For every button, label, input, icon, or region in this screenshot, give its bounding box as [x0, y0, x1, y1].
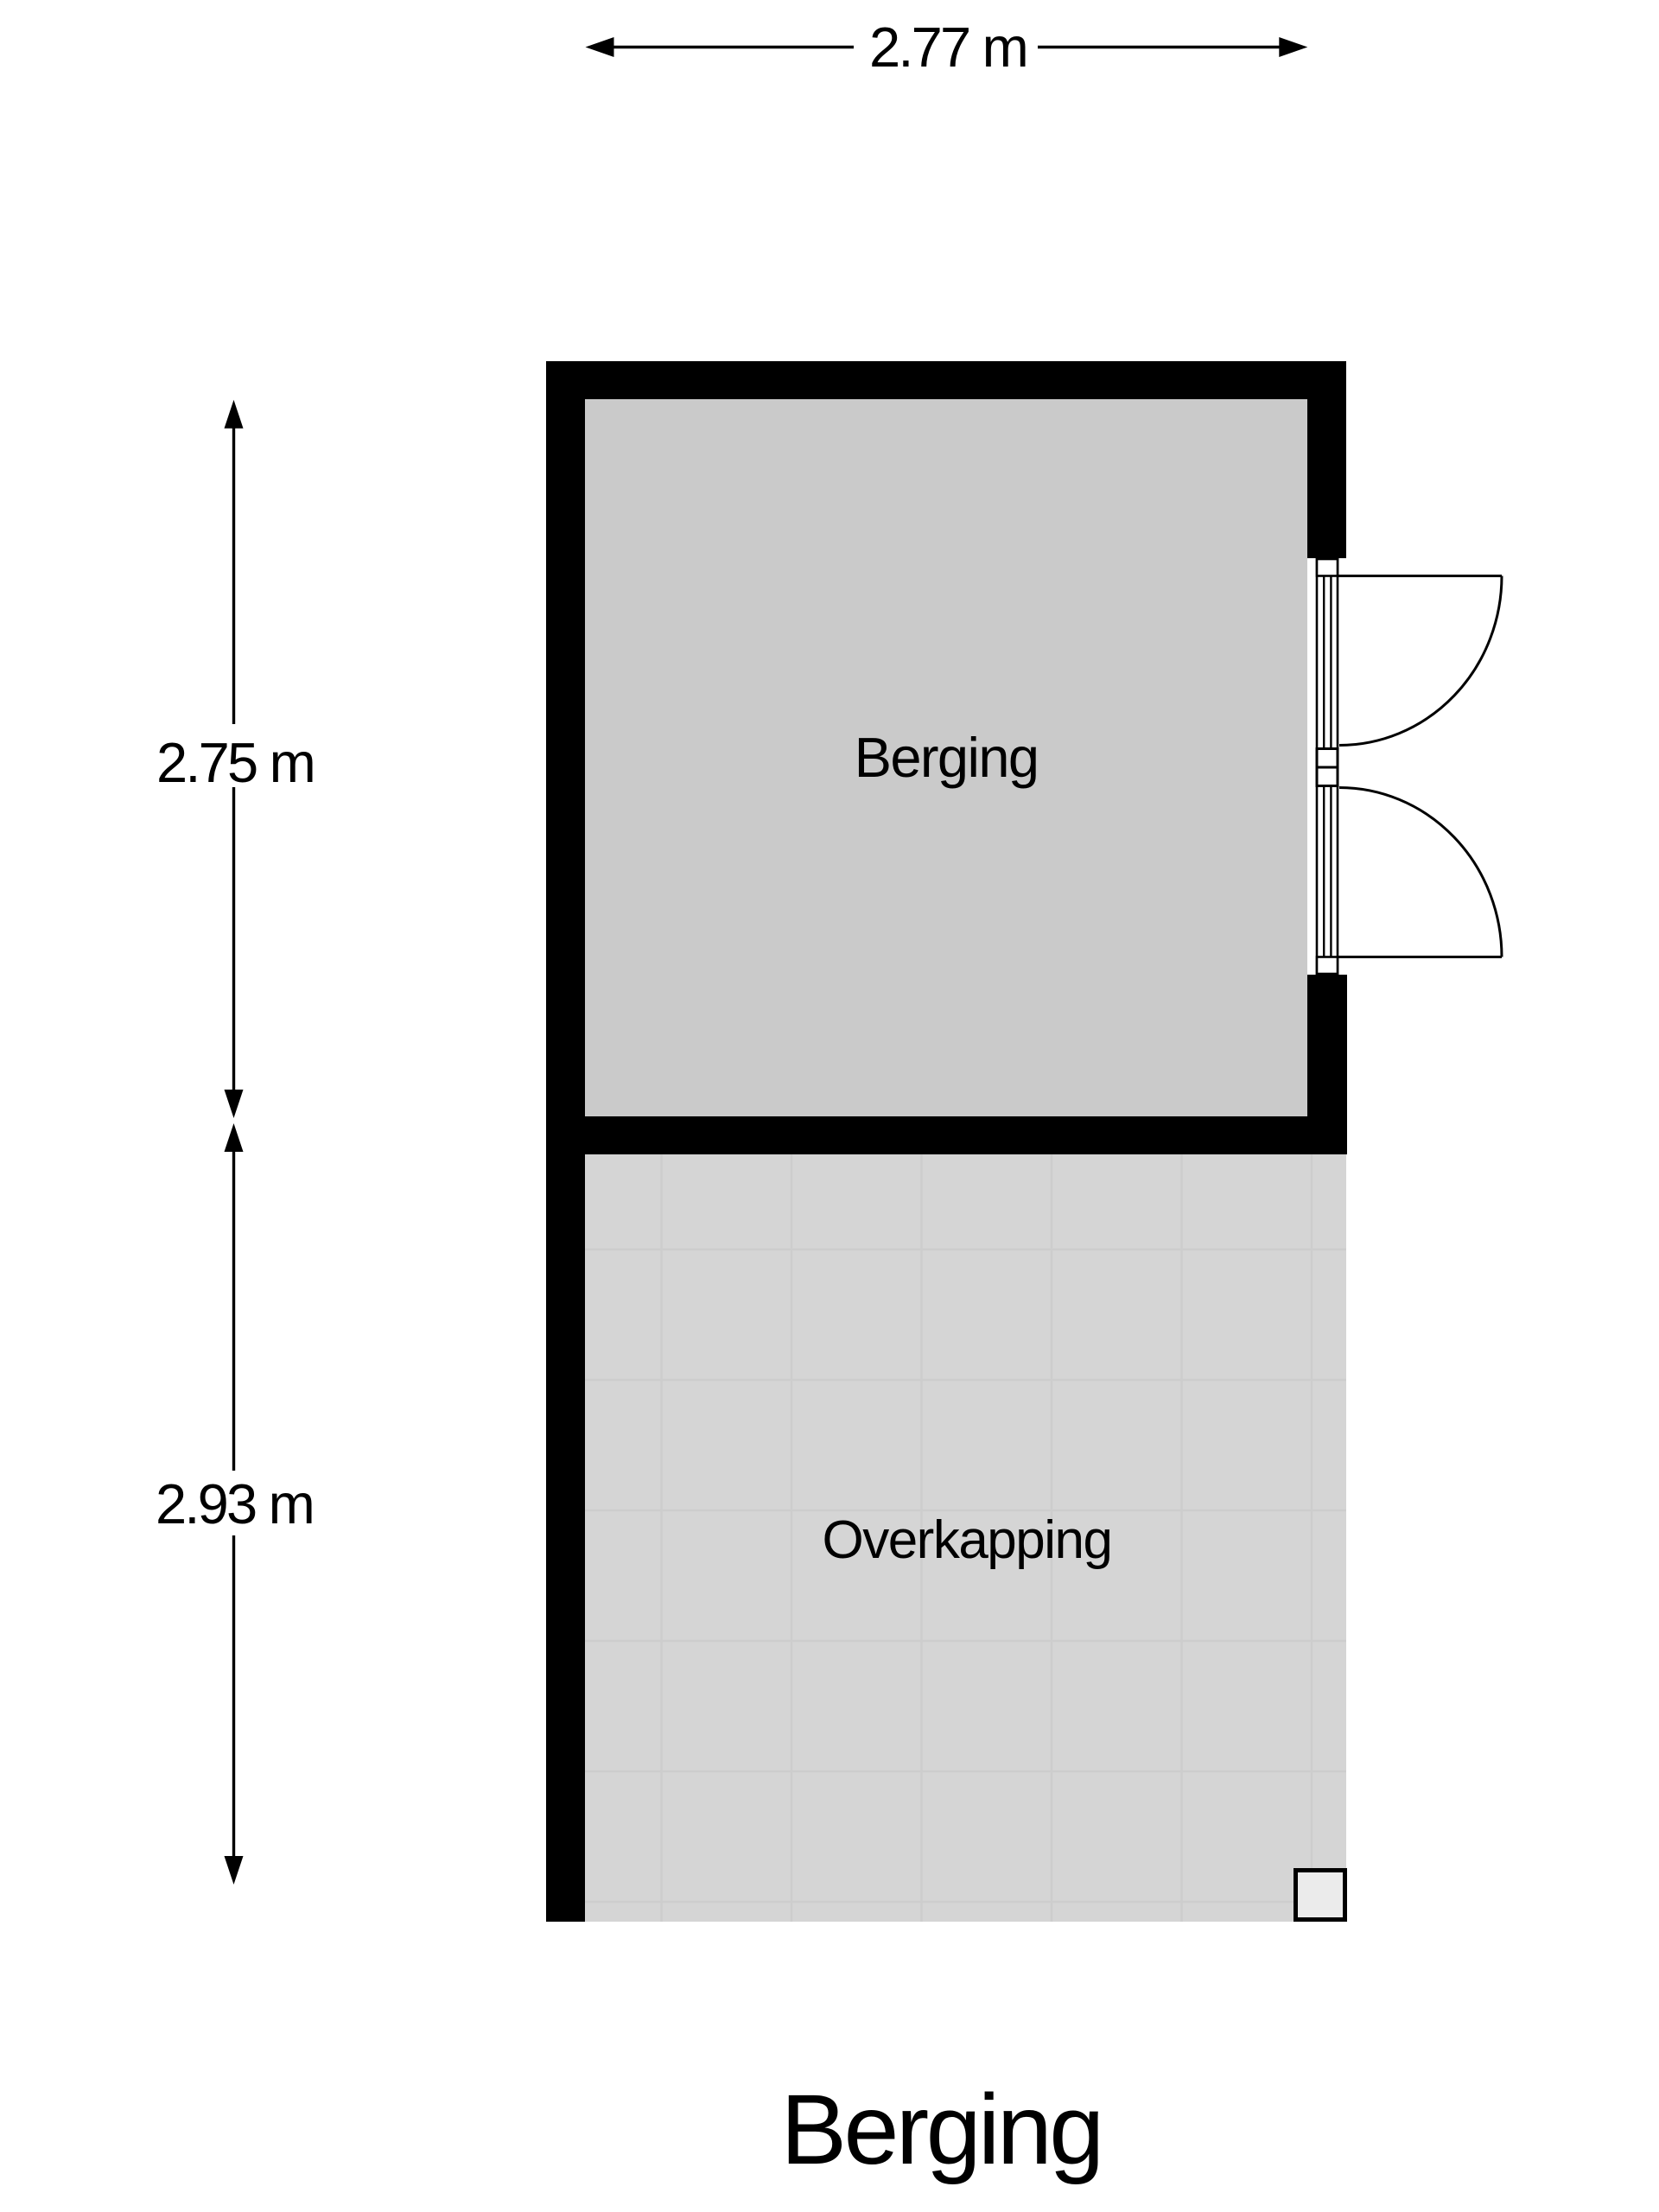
svg-text:2.93 m: 2.93 m: [156, 1472, 313, 1535]
svg-text:Berging: Berging: [780, 2075, 1101, 2185]
svg-text:Berging: Berging: [855, 726, 1039, 789]
svg-text:Overkapping: Overkapping: [822, 1510, 1111, 1570]
svg-text:2.75 m: 2.75 m: [156, 731, 314, 794]
svg-text:2.77 m: 2.77 m: [869, 16, 1027, 79]
